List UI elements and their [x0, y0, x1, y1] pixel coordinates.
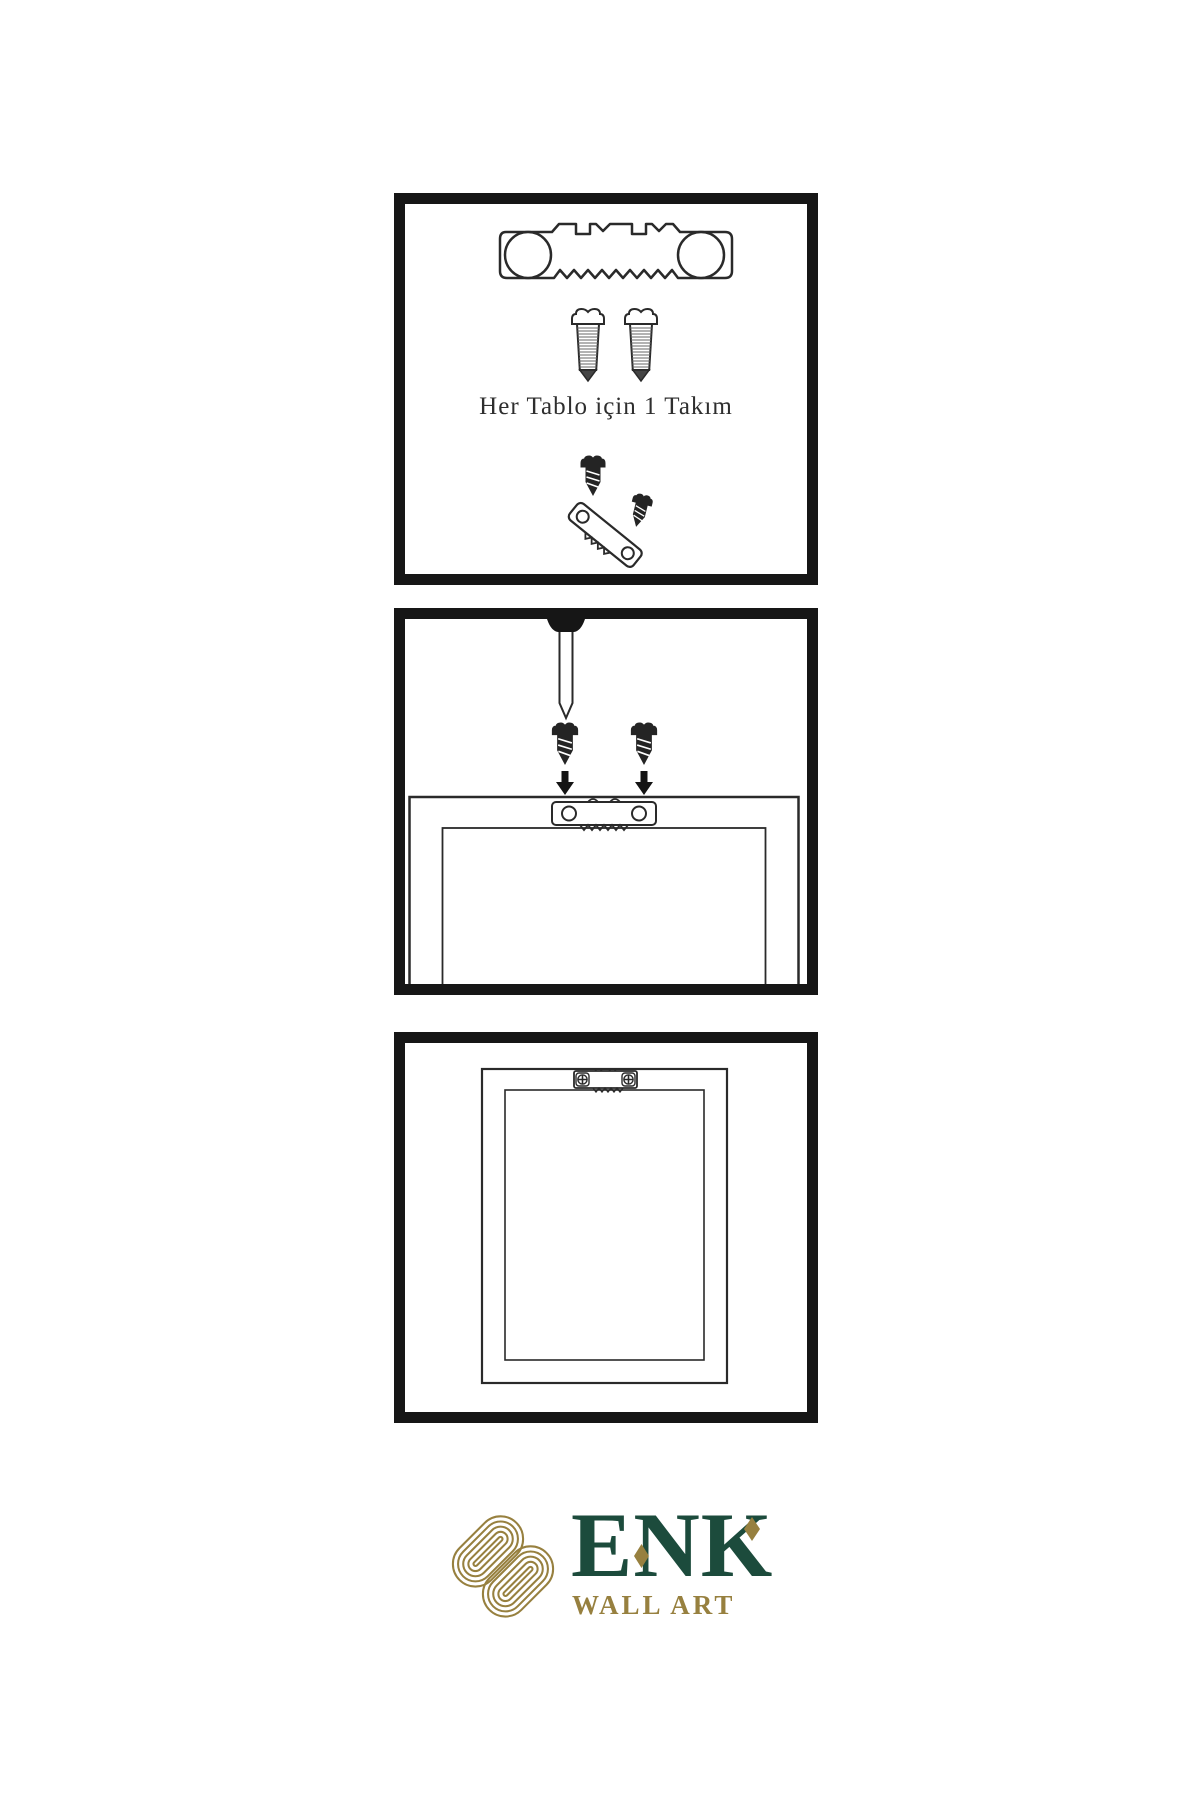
- screw-into-hanger-icon: [564, 456, 654, 573]
- gold-diamond-icon: [744, 1517, 760, 1541]
- frame-back-icon: [482, 1069, 727, 1383]
- mounted-frame-drawing: [405, 1043, 807, 1412]
- brand-tagline: WALL ART: [572, 1592, 735, 1619]
- phillips-screw-head-icon: [576, 1073, 589, 1086]
- screwed-hanger-icon: [574, 1069, 637, 1092]
- screw-with-arrow-icon: [631, 723, 656, 795]
- knot-logo-icon: [443, 1498, 563, 1633]
- sawtooth-hanger-icon: [552, 799, 656, 830]
- hardware-kit-drawing: [405, 204, 807, 574]
- gold-diamond-icon: [634, 1544, 649, 1568]
- wall-installation-drawing: [405, 619, 807, 984]
- wall-nail-icon: [547, 619, 585, 718]
- panel-mounted-frame: [394, 1032, 818, 1423]
- brand-name: ENK: [571, 1499, 773, 1591]
- panel-hardware-kit: Her Tablo için 1 Takım: [394, 193, 818, 585]
- phillips-screw-head-icon: [622, 1073, 635, 1086]
- instruction-sheet: Her Tablo için 1 Takım: [0, 0, 1200, 1800]
- panel-wall-installation: [394, 608, 818, 995]
- screw-with-arrow-icon: [552, 723, 577, 795]
- kit-caption: Her Tablo için 1 Takım: [405, 393, 807, 421]
- mounting-screw-icon: [625, 309, 657, 381]
- mounting-screw-icon: [572, 309, 604, 381]
- sawtooth-hanger-icon: [500, 224, 732, 278]
